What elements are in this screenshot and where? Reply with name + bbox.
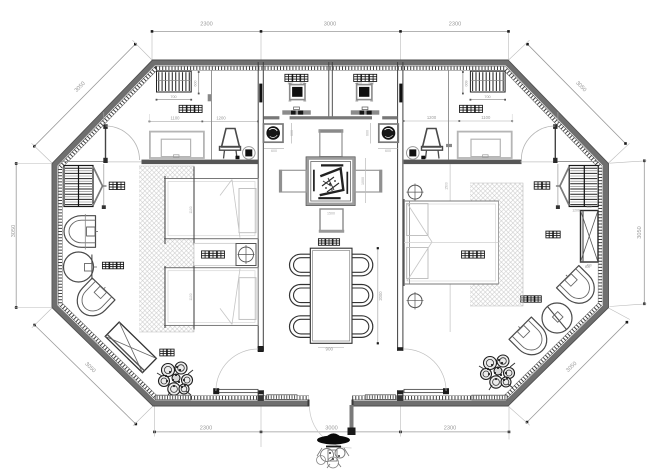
svg-text:2300: 2300: [449, 22, 461, 28]
svg-text:1200: 1200: [427, 115, 437, 120]
svg-text:400: 400: [586, 205, 592, 209]
svg-text:1100: 1100: [481, 115, 491, 120]
svg-text:1200: 1200: [572, 209, 580, 213]
svg-text:3050: 3050: [637, 226, 643, 238]
svg-text:2000: 2000: [378, 291, 383, 301]
svg-text:600: 600: [585, 265, 591, 269]
svg-text:1500: 1500: [327, 212, 335, 216]
svg-text:600: 600: [385, 149, 391, 153]
svg-text:600: 600: [271, 149, 277, 153]
svg-text:1000: 1000: [361, 177, 365, 185]
svg-text:2300: 2300: [444, 425, 456, 431]
svg-text:3000: 3000: [324, 22, 336, 28]
svg-text:600: 600: [290, 130, 294, 136]
svg-text:3000: 3000: [325, 425, 337, 431]
svg-text:3050: 3050: [11, 225, 17, 237]
svg-text:1500: 1500: [444, 182, 448, 190]
svg-text:1100: 1100: [189, 206, 193, 213]
svg-text:600: 600: [366, 130, 370, 136]
svg-text:700: 700: [484, 95, 490, 99]
svg-text:600: 600: [193, 81, 197, 87]
svg-text:2300: 2300: [200, 22, 212, 28]
svg-text:1100: 1100: [170, 115, 180, 120]
svg-text:2300: 2300: [200, 425, 212, 431]
svg-text:1100: 1100: [189, 293, 193, 300]
svg-text:700: 700: [170, 95, 176, 99]
svg-text:600: 600: [464, 81, 468, 87]
svg-text:1200: 1200: [216, 115, 226, 120]
